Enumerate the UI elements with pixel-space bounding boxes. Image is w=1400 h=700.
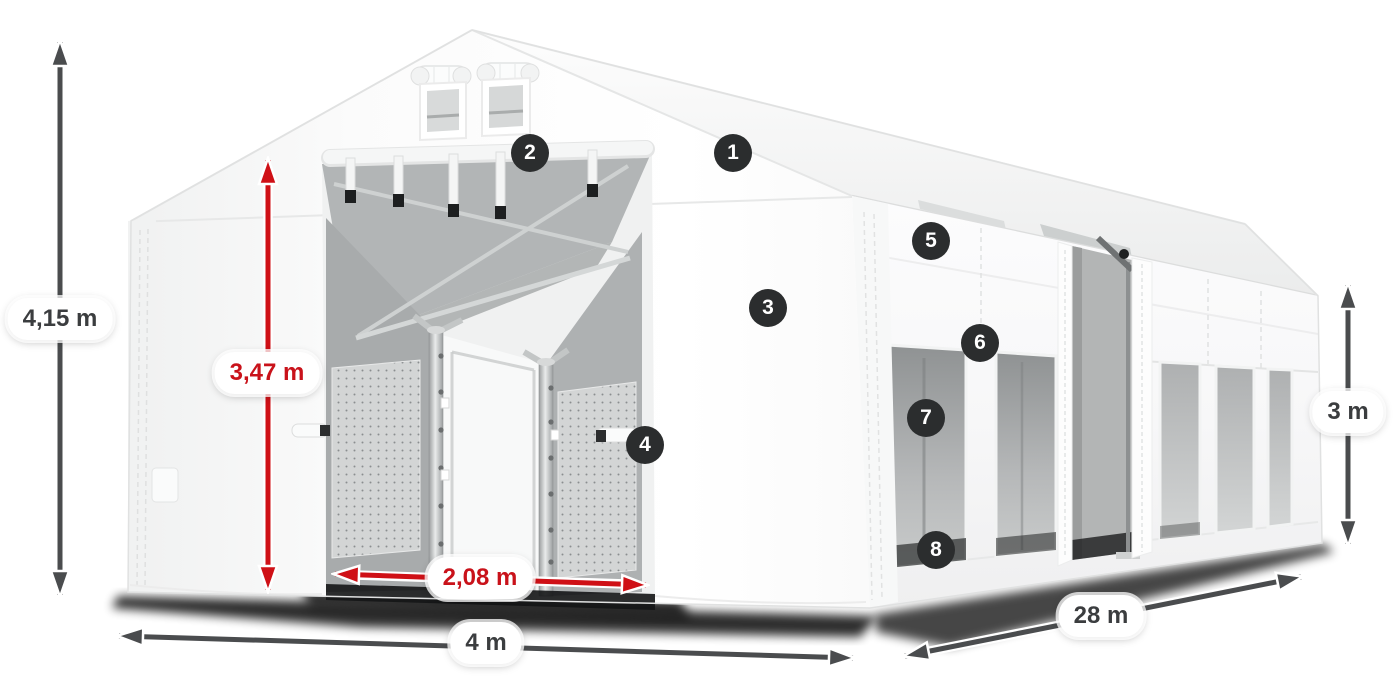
callout-badge-3: 3	[749, 289, 787, 327]
callout-badge-4: 4	[626, 426, 664, 464]
callout-badge-7: 7	[907, 399, 945, 437]
callout-badge-1: 1	[714, 134, 752, 172]
callout-badge-8: 8	[917, 531, 955, 569]
dimension-label-width: 4 m	[450, 622, 521, 664]
tent-illustration	[0, 0, 1400, 700]
dimension-label-inner-height: 3,47 m	[215, 352, 320, 394]
side-window-2	[996, 352, 1056, 556]
side-window-4	[1216, 366, 1254, 533]
dimension-label-length: 28 m	[1059, 595, 1144, 637]
vent-window-left	[411, 66, 471, 140]
vent-window-right	[477, 63, 539, 136]
callout-badge-2: 2	[511, 134, 549, 172]
front-entrance-opening	[322, 148, 655, 610]
mesh-panel-left	[332, 360, 420, 558]
side-window-5	[1268, 369, 1292, 527]
left-corner-post	[128, 218, 156, 592]
dimension-label-side-height: 3 m	[1312, 391, 1383, 433]
dimension-label-entrance-width: 2,08 m	[428, 557, 533, 599]
tent-dimension-diagram: 4,15 m 3,47 m 2,08 m 4 m 28 m 3 m 1 2 3 …	[0, 0, 1400, 700]
side-window-3	[1160, 362, 1200, 539]
dimension-label-total-height: 4,15 m	[8, 298, 113, 340]
callout-badge-5: 5	[912, 222, 950, 260]
side-entrance-opening	[1058, 238, 1152, 566]
mesh-panel-right	[558, 382, 636, 578]
rolled-door-curtain	[330, 148, 646, 158]
door-handle-left	[292, 424, 330, 437]
callout-badge-6: 6	[961, 324, 999, 362]
